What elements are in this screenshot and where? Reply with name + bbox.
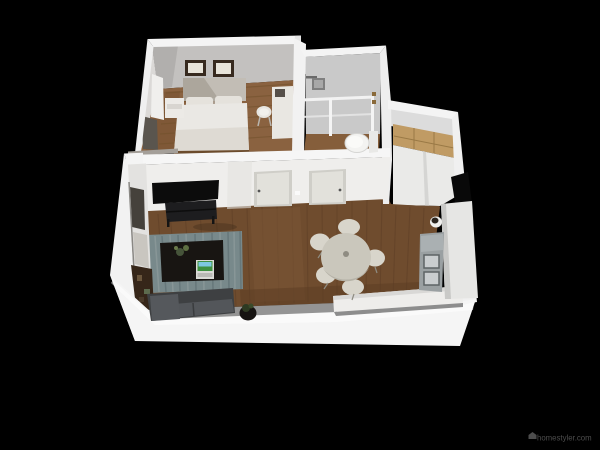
svg-text:homestyler.com: homestyler.com bbox=[537, 434, 592, 443]
